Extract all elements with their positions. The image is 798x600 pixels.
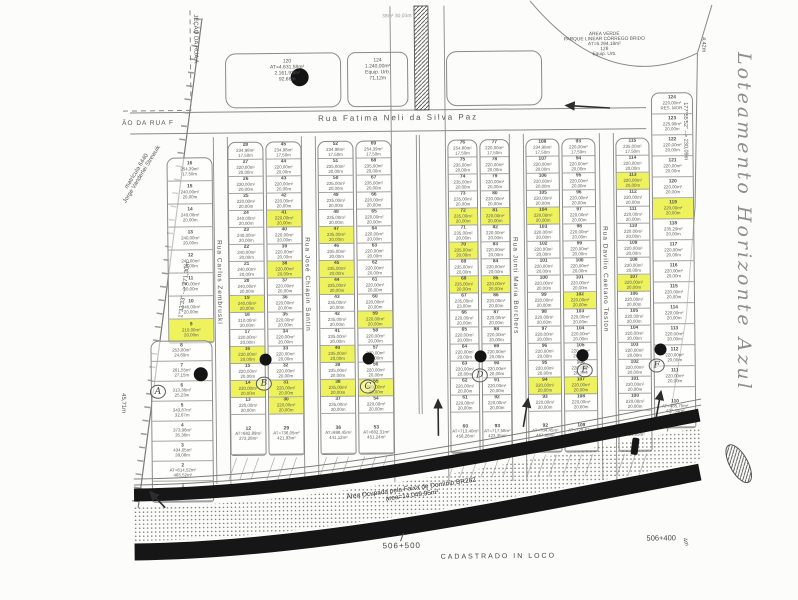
block-letter-B: B — [256, 377, 272, 391]
lot-cell-60: 60220,00m²20,00m — [358, 294, 392, 311]
lot-cell-107: 107220,00m²20,00m — [527, 157, 559, 174]
lot-frontage: 20,00m — [626, 251, 641, 256]
lot-cell-43: 43220,00m²20,00m — [267, 176, 301, 193]
lot-cell-99: 99220,00m²20,00m — [528, 293, 560, 310]
lot-cell-77: 77220,00m²17,50m — [480, 140, 508, 157]
lot-cell-113: 113220,00m²20,00m — [617, 173, 649, 190]
lot-cell-39: 39235,00m²20,00m — [321, 363, 355, 380]
lote-120-label: 120 AT=4.631,58m² 2.161,93m² 92,68m — [249, 58, 324, 83]
lot-cell-115: 115220,00m²20,00m — [654, 282, 694, 303]
faixa-dominio-label: Área Ocupada pela Faixa de Domínio BR282… — [314, 472, 509, 512]
lote-124-label: 124 1.240,00m² Equip. Urb. 71,12m — [349, 57, 405, 82]
lot-cell-93: 93220,00m²20,00m — [529, 395, 561, 412]
road-post-badge — [630, 437, 639, 455]
lot-frontage: 20,00m — [238, 170, 253, 175]
lot-frontage: 20,00m — [329, 255, 344, 260]
lot-frontage: 20,00m — [329, 221, 344, 226]
lot-frontage: 20,00m — [239, 221, 254, 226]
street-fatima-label: Rua Fatima Neli da Silva Paz — [318, 112, 478, 123]
lot-cell-1: 1AT=1.301,49m²605,88m² — [153, 481, 213, 502]
lot-frontage: 20,00m — [330, 323, 345, 328]
lot-frontage: 20,00m — [278, 323, 293, 328]
lot-frontage: 20,00m — [367, 203, 382, 208]
lot-frontage: 20,00m — [537, 337, 552, 342]
lot-cell-39: 39220,00m²20,00m — [267, 244, 301, 261]
lot-frontage: 20,00m — [241, 391, 256, 396]
lot-cell-51: 51235,00m²20,00m — [319, 159, 353, 176]
lot-cell-27: 27220,00m²20,00m — [229, 160, 263, 177]
lot-cell-5: 5343,87m²32,67m — [152, 401, 212, 422]
lot-frontage: 20,00m — [573, 286, 588, 291]
lot-area: 456,26m² — [456, 435, 475, 440]
lot-frontage: 20,00m — [572, 218, 587, 223]
rua-f-label: ÃO DA RUA F — [122, 120, 174, 128]
lot-cell-103: 103220,00m²20,00m — [618, 343, 650, 360]
lot-frontage: 20,00m — [537, 371, 552, 376]
lot-frontage: 20,00m — [666, 211, 681, 216]
lot-cell-87: 87220,00m²20,00m — [482, 310, 510, 327]
lot-frontage: 20,00m — [489, 372, 504, 377]
lot-cell-70: 70235,00m²20,00m — [449, 242, 477, 259]
lot-frontage: 20,00m — [537, 303, 552, 308]
lot-cell-94: 94220,00m²20,00m — [529, 378, 561, 395]
lot-frontage: 20,00m — [573, 337, 588, 342]
lot-cell-86: 86220,00m²20,00m — [482, 293, 510, 310]
lot-area: 423,35m² — [488, 434, 507, 439]
survey-marker-dot — [260, 354, 272, 366]
lot-cell-72: 72235,00m²20,00m — [449, 208, 477, 225]
lot-frontage: 20,00m — [573, 320, 588, 325]
lot-cell-33: 33220,00m²20,00m — [268, 346, 302, 363]
lot-cell-37: 37220,00m²20,00m — [268, 278, 302, 295]
lot-frontage: 20,00m — [367, 271, 382, 276]
lot-cell-88: 88220,00m²20,00m — [482, 327, 510, 344]
lot-cell-100: 100220,00m²20,00m — [564, 258, 596, 275]
lot-cell-79: 79220,00m²20,00m — [481, 174, 509, 191]
corner-lot-cell-29: 29AT=736,05m²421,93m² — [269, 414, 303, 454]
lot-cell-78: 78220,00m²20,00m — [481, 157, 509, 174]
lot-frontage: 20,00m — [367, 220, 382, 225]
annotations-layer: Rua Fatima Neli da Silva PazÃO DA RUA FJ… — [0, 0, 795, 4]
lot-frontage: 20,00m — [457, 287, 472, 292]
lot-cell-107: 107220,00m²20,00m — [618, 275, 650, 292]
block-strip-E-left: 108234,98m²17,50m107220,00m²20,00m106220… — [525, 139, 562, 453]
lot-cell-36: 36220,00m²20,00m — [268, 295, 302, 312]
lot-cell-112: 112220,00m²20,00m — [617, 190, 649, 207]
lot-frontage: 20,00m — [328, 170, 343, 175]
lot-frontage: 20,00m — [367, 254, 382, 259]
survey-marker-dot — [475, 350, 487, 362]
lot-cell-97: 97220,00m²20,00m — [563, 207, 595, 224]
lot-frontage: 20,00m — [329, 204, 344, 209]
lot-cell-74: 74235,00m²20,00m — [449, 174, 477, 191]
lot-area: 451,24m² — [367, 436, 386, 441]
lot-frontage: 20,00m — [626, 200, 641, 205]
lot-cell-45: 45234,98m²17,50m — [266, 142, 300, 159]
lot-frontage: 20,00m — [538, 388, 553, 393]
lot-cell-103: 103220,00m²20,00m — [564, 309, 596, 326]
lot-frontage: 17,50m — [535, 150, 550, 155]
block-letter-D: D — [472, 368, 488, 382]
lot-area: 421,93m² — [277, 437, 296, 442]
lot-area: 427,34m² — [666, 409, 685, 414]
cota-top: 38m² 30,03m — [382, 13, 412, 19]
street-teston-label: Rua Davilio Caetano Teston — [601, 226, 609, 333]
lot-frontage: 20,00m — [331, 408, 346, 413]
lot-frontage: 20,00m — [488, 202, 503, 207]
lot-cell-85: 85220,00m²20,00m — [482, 276, 510, 293]
lot-cell-105: 105220,00m²20,00m — [618, 309, 650, 326]
lot-cell-95: 95220,00m²20,00m — [563, 173, 595, 190]
lot-frontage: 20,00m — [487, 185, 502, 190]
lot-frontage: 20,00m — [239, 238, 254, 243]
lot-frontage: 20,00m — [328, 187, 343, 192]
lot-cell-44: 44235,00m²20,00m — [320, 278, 354, 295]
lot-frontage: 20,00m — [487, 168, 502, 173]
lot-frontage: 20,00m — [537, 320, 552, 325]
lot-cell-115: 115235,00m²17,50m — [616, 139, 648, 156]
lot-cell-82: 82220,00m²20,00m — [481, 225, 509, 242]
lot-frontage: 24,60m — [174, 354, 189, 359]
lot-cell-34: 34220,00m²20,00m — [268, 329, 302, 346]
lot-frontage: 20,00m — [628, 404, 643, 409]
lot-frontage: 20,00m — [329, 238, 344, 243]
lot-cell-35: 35220,00m²20,00m — [268, 312, 302, 329]
lot-cell-94: 94220,00m²20,00m — [563, 156, 595, 173]
lot-cell-66: 66220,00m²20,00m — [450, 310, 478, 327]
lot-cell-26: 26220,00m²20,00m — [229, 177, 263, 194]
lot-frontage: 20,00m — [625, 166, 640, 171]
lot-frontage: 20,00m — [490, 406, 505, 411]
lot-cell-118: 118235,29m²20,00m — [653, 219, 693, 240]
lot-frontage: 20,00m — [241, 408, 256, 413]
block-strip-A-lower: 8253,00m²24,60m7261,55m²27,15m6313,36m²2… — [150, 340, 214, 503]
lot-frontage: 20,00m — [667, 358, 682, 363]
lot-frontage: 20,00m — [627, 302, 642, 307]
lot-frontage: 20,00m — [330, 340, 345, 345]
lot-frontage: 20,00m — [537, 354, 552, 359]
lot-cell-92: 92220,00m²20,00m — [483, 395, 511, 412]
lot-cell-56: 56220,00m²20,00m — [359, 362, 393, 379]
lot-cell-75: 75235,00m²20,00m — [449, 157, 477, 174]
corner-lot-cell-93: 93AT=717,58m²423,35m² — [483, 412, 511, 452]
lot-cell-110: 110220,00m²20,00m — [617, 224, 649, 241]
lot-frontage: 465,52m² — [174, 474, 193, 479]
lot-frontage: 39,08m — [175, 454, 190, 459]
survey-marker-dot — [363, 352, 375, 364]
lot-frontage: 20,00m — [240, 323, 255, 328]
block-strip-B-left: 28234,98m²17,50m27220,00m²20,00m26220,00… — [227, 142, 266, 456]
lot-frontage: 20,00m — [240, 357, 255, 362]
cadastrado-label: CADASTRADO IN LOCO — [441, 553, 556, 561]
lot-cell-40: 40235,00m²20,00m — [320, 346, 354, 363]
lot-blocks: 16254,39m²17,50m15240,00m²20,00m14240,00… — [0, 0, 795, 4]
lot-area: 273,28m² — [239, 437, 258, 442]
lot-frontage: 17,50m — [328, 153, 343, 158]
lot-frontage: 27,15m — [174, 374, 189, 379]
lot-cell-61: 61220,00m²20,00m — [451, 395, 479, 412]
lot-cell-18: 18210,00m²20,00m — [230, 313, 264, 330]
lot-frontage: 20,00m — [536, 252, 551, 257]
lot-frontage: 20,00m — [278, 306, 293, 311]
lot-cell-47: 47235,00m²20,00m — [319, 227, 353, 244]
lot-cell-16: 16254,39m²17,50m — [168, 158, 212, 181]
lot-frontage: 20,00m — [457, 355, 472, 360]
lot-cell-28: 28234,98m²17,50m — [228, 143, 262, 160]
lot-frontage: 20,00m — [535, 167, 550, 172]
lot-frontage: 17,50m — [276, 153, 291, 158]
lot-frontage: 20,00m — [667, 295, 682, 300]
lot-frontage: 20,00m — [368, 339, 383, 344]
lot-frontage: 20,00m — [277, 255, 292, 260]
lot-frontage: 20,00m — [488, 253, 503, 258]
lot-frontage: 20,00m — [572, 201, 587, 206]
survey-marker-dot — [194, 367, 208, 381]
lot-frontage: 20,00m — [489, 287, 504, 292]
lot-frontage: 20,00m — [276, 170, 291, 175]
lot-cell-42: 42235,00m²20,00m — [320, 312, 354, 329]
lot-frontage: 20,00m — [488, 219, 503, 224]
block-letter-C: C — [360, 379, 376, 393]
avenue-median-hatch — [414, 6, 429, 110]
lot-frontage: 25,23m — [175, 394, 190, 399]
lot-frontage: 20,00m — [276, 187, 291, 192]
lot-cell-104: 104220,00m²20,00m — [564, 326, 596, 343]
lot-cell-31: 31220,00m²20,00m — [269, 380, 303, 397]
lot-frontage: 20,00m — [456, 236, 471, 241]
lot-frontage: 20,00m — [239, 204, 254, 209]
lot-frontage: 20,00m — [666, 190, 681, 195]
lot-frontage: 20,00m — [538, 405, 553, 410]
lot-frontage: 20,00m — [239, 255, 254, 260]
handwritten-title: Loteamento Horizonte Azul — [733, 52, 755, 392]
block-strip-B-right: 45234,98m²17,50m44220,00m²20,00m43220,00… — [265, 141, 304, 455]
lot-frontage: 20,00m — [488, 236, 503, 241]
lot-frontage: 20,00m — [571, 167, 586, 172]
lot-cell-83: 83220,00m²20,00m — [481, 242, 509, 259]
lot-cell-69: 69235,00m²20,00m — [450, 259, 478, 276]
block-strip-F-right: 124220,00m²RES. MOR.123225,90m²20,00m122… — [651, 92, 697, 428]
block-strip-C-right: 69254,39m²17,50m68235,00m²20,00m67235,00… — [355, 140, 394, 454]
subdivision-map: 16254,39m²17,50m15240,00m²20,00m14240,00… — [0, 0, 798, 600]
lot-frontage: 20,00m — [489, 338, 504, 343]
lot-cell-104: 104220,00m²20,00m — [527, 208, 559, 225]
lot-cell-101: 101220,00m²20,00m — [528, 259, 560, 276]
lot-cell-22: 22240,00m²20,00m — [229, 245, 263, 262]
lot-frontage: 20,00m — [626, 234, 641, 239]
lot-frontage: 20,00m — [279, 408, 294, 413]
lot-cell-73: 73235,00m²20,00m — [449, 191, 477, 208]
block-strip-D-left: 76254,80m²17,50m75235,00m²20,00m74235,00… — [447, 139, 480, 453]
street-zembruski-label: Rua Carlos Zembruski — [215, 240, 223, 325]
lot-frontage: 17,50m — [487, 151, 502, 156]
corner-lot-cell-109: 109AT=729,62m²447,15m² — [565, 411, 597, 451]
lot-cell-102: 102220,00m²20,00m — [564, 292, 596, 309]
lot-frontage: 17,50m — [625, 149, 640, 154]
corner-lot-cell-12: 12AT=682,89m²273,28m² — [231, 415, 265, 455]
lot-frontage: 20,00m — [329, 272, 344, 277]
lot-frontage: 20,00m — [665, 148, 680, 153]
lot-frontage: 35,36m — [175, 434, 190, 439]
lot-cell-54: 54220,00m²20,00m — [359, 396, 393, 413]
lot-frontage: 20,00m — [369, 407, 384, 412]
block-strip-F-left: 115235,00m²17,50m114220,00m²20,00m113220… — [615, 138, 652, 452]
lot-frontage: 20,00m — [573, 303, 588, 308]
corner-lot-cell-53: 53AT=682,31m²451,24m² — [359, 413, 393, 453]
lot-frontage: 20,00m — [456, 270, 471, 275]
lot-frontage: 20,00m — [278, 340, 293, 345]
lot-frontage: 20,00m — [490, 389, 505, 394]
lot-frontage: 20,00m — [277, 238, 292, 243]
lot-frontage: 20,00m — [366, 169, 381, 174]
lot-frontage: 20,00m — [278, 374, 293, 379]
lot-frontage: 20,00m — [278, 357, 293, 362]
lot-cell-96: 96220,00m²20,00m — [563, 190, 595, 207]
lot-frontage: 20,00m — [330, 357, 345, 362]
lot-frontage: 20,00m — [574, 388, 589, 393]
lot-cell-15: 15240,00m²20,00m — [168, 181, 212, 204]
lot-cell-20: 20240,00m²20,00m — [230, 279, 264, 296]
lot-cell-91: 91220,00m²20,00m — [483, 378, 511, 395]
lot-frontage: 23,00m — [457, 304, 472, 309]
lot-frontage: 20,00m — [366, 186, 381, 191]
block-strip-D-right: 77220,00m²17,50m78220,00m²20,00m79220,00… — [479, 139, 512, 453]
lot-frontage: 20,00m — [238, 187, 253, 192]
block-strip-E-right: 93220,00m²17,50m94220,00m²20,00m95220,00… — [561, 138, 598, 452]
lot-frontage: 20,00m — [627, 336, 642, 341]
lot-cell-4: 4373,96m²35,36m — [152, 421, 212, 442]
lot-cell-113: 113220,00m²20,00m — [654, 324, 694, 345]
block-letter-E: E — [577, 363, 593, 377]
lot-cell-44: 44220,00m²20,00m — [267, 159, 301, 176]
lot-cell-106: 106220,00m²20,00m — [527, 174, 559, 191]
lot-cell-2: 2AT=614,52m²465,52m² — [153, 461, 213, 482]
corner-lot-cell-110: 110AT=485,75m²427,34m² — [655, 387, 695, 427]
lot-cell-116: 116220,00m²20,00m — [654, 261, 694, 282]
lot-frontage: 20,00m — [277, 204, 292, 209]
matricula-label: matrícula 6440 Jorge Vanderlei Strewuik — [111, 131, 168, 214]
lot-frontage: 20,00m — [368, 373, 383, 378]
lot-cell-52: 52234,98m²17,50m — [318, 142, 352, 159]
street-borchers-label: Rua Junti Maria Borchers — [511, 237, 519, 334]
km-506-500: 506+500 — [383, 541, 421, 550]
lot-cell-67: 67235,00m²20,00m — [357, 175, 391, 192]
lot-frontage: 20,00m — [330, 306, 345, 311]
lot-cell-93: 93220,00m²17,50m — [562, 139, 594, 156]
lot-cell-24: 24240,00m²20,00m — [229, 211, 263, 228]
lot-cell-32: 32220,00m²20,00m — [269, 363, 303, 380]
lot-frontage: 20,00m — [240, 306, 255, 311]
lot-frontage: 20,00m — [536, 269, 551, 274]
lot-frontage: 17,50m — [455, 151, 470, 156]
lot-cell-102: 102220,00m²20,00m — [619, 360, 651, 377]
lot-cell-95: 95220,00m²20,00m — [529, 361, 561, 378]
lot-frontage: 20,00m — [278, 289, 293, 294]
lot-cell-50: 50235,00m²20,00m — [319, 176, 353, 193]
lot-cell-62: 62220,00m²20,00m — [358, 260, 392, 277]
lot-cell-96: 96220,00m²20,00m — [528, 344, 560, 361]
lot-frontage: 17,50m — [366, 152, 381, 157]
lot-cell-84: 84220,00m²20,00m — [482, 259, 510, 276]
lot-frontage: 20,00m — [240, 289, 255, 294]
survey-marker-dot — [654, 343, 666, 355]
lot-cell-41: 41235,00m²20,00m — [320, 329, 354, 346]
lot-cell-11: 11240,00m²20,00m — [169, 273, 213, 296]
lot-frontage: 20,00m — [627, 285, 642, 290]
lot-frontage: 20,00m — [455, 168, 470, 173]
lot-cell-30: 30220,00m²20,00m — [269, 397, 303, 414]
lot-cell-41: 41220,00m²20,00m — [267, 210, 301, 227]
lot-cell-63: 63220,00m²20,00m — [357, 243, 391, 260]
lot-frontage: 17,50m — [182, 172, 197, 177]
lot-frontage: 20,00m — [574, 405, 589, 410]
block-letter-A: A — [150, 385, 166, 399]
lot-cell-108: 108234,98m²17,50m — [526, 140, 558, 157]
lot-frontage: 20,00m — [489, 321, 504, 326]
lot-cell-109: 109220,00m²20,00m — [617, 241, 649, 258]
lot-frontage: 32,67m — [175, 414, 190, 419]
medida-leste: 177°55'52" --> 230,09m — [682, 102, 689, 160]
lot-cell-68: 68235,00m²20,00m — [357, 158, 391, 175]
lot-cell-21: 21240,00m²20,00m — [230, 262, 264, 279]
lot-frontage: 20,00m — [240, 374, 255, 379]
lot-cell-9: 9210,00m²20,00m — [169, 319, 213, 342]
lot-cell-17: 17220,00m²20,00m — [230, 330, 264, 347]
lot-area: 441,12m² — [329, 436, 348, 441]
lot-cell-76: 76254,80m²17,50m — [448, 140, 476, 157]
survey-marker-dot — [577, 349, 589, 361]
lot-frontage: 20,00m — [571, 184, 586, 189]
lot-cell-65: 65220,00m²20,00m — [357, 209, 391, 226]
lot-cell-101: 101220,00m²20,00m — [564, 275, 596, 292]
lot-cell-89: 89220,00m²20,00m — [482, 344, 510, 361]
lot-frontage: 20,00m — [628, 387, 643, 392]
lot-cell-23: 23240,00m²20,00m — [229, 228, 263, 245]
lot-cell-40: 40220,00m²20,00m — [267, 227, 301, 244]
lot-cell-43: 43235,00m²20,00m — [320, 295, 354, 312]
medida-ne: 4,42m — [700, 37, 706, 52]
lot-frontage: 20,00m — [368, 288, 383, 293]
lot-frontage: 20,00m — [458, 406, 473, 411]
lot-frontage: 20,00m — [489, 355, 504, 360]
lot-frontage: 20,00m — [331, 391, 346, 396]
lot-cell-13: 13220,00m²20,00m — [231, 398, 265, 415]
lot-cell-69: 69254,39m²17,50m — [356, 141, 390, 158]
lot-cell-98: 98220,00m²20,00m — [563, 224, 595, 241]
street-chiapin-label: Rua José Chiapin Santin — [303, 237, 311, 332]
lot-cell-80: 80220,00m²20,00m — [481, 191, 509, 208]
lot-cell-59: 59220,00m²20,00m — [358, 311, 392, 328]
corner-lot-cell-92: 92AT=704,45m²467,88m² — [529, 412, 561, 452]
lot-cell-45: 45235,00m²20,00m — [320, 261, 354, 278]
lot-cell-19: 19240,00m²20,00m — [230, 296, 264, 313]
lot-cell-38: 38235,00m²20,00m — [321, 380, 355, 397]
lot-frontage: 20,00m — [626, 268, 641, 273]
lot-cell-120: 120220,00m²20,00m — [653, 177, 693, 198]
lot-frontage: 20,00m — [368, 305, 383, 310]
medida-45m: 45,71m — [120, 393, 126, 413]
lot-frontage: 20,00m — [277, 272, 292, 277]
lot-frontage: 20,00m — [456, 219, 471, 224]
lot-cell-66: 66220,00m²20,00m — [357, 192, 391, 209]
lot-frontage: 20,00m — [457, 338, 472, 343]
lot-frontage: 20,00m — [667, 337, 682, 342]
lot-cell-101: 101220,00m²20,00m — [619, 377, 651, 394]
block-strip-C-left: 52234,98m²17,50m51235,00m²20,00m50235,00… — [317, 141, 356, 455]
lot-frontage: 20,00m — [572, 252, 587, 257]
lot-cell-100: 100220,00m²20,00m — [528, 276, 560, 293]
lot-cell-103: 103220,00m²20,00m — [527, 225, 559, 242]
